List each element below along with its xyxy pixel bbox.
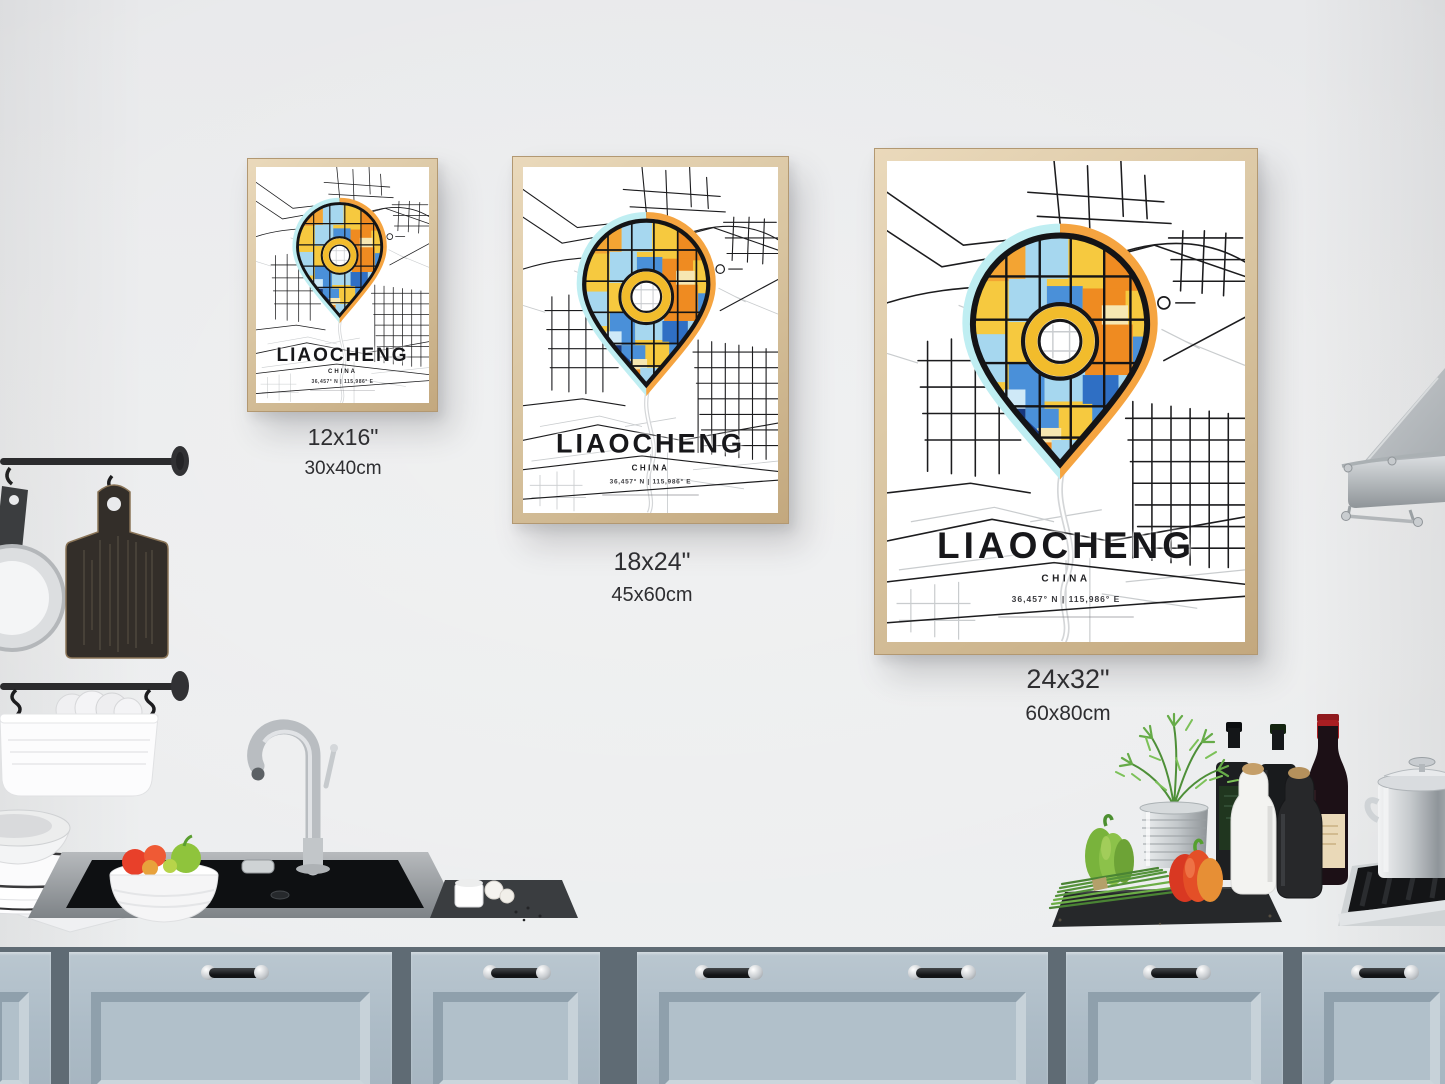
- city-map-art: [523, 167, 778, 513]
- faucet: [252, 727, 339, 874]
- kitchen-wall-mockup: LIAOCHENG CHINA 36,457° N | 115,986° E 1…: [0, 0, 1445, 1084]
- green-bell-pepper: [1085, 816, 1134, 885]
- cabinet-row: [0, 947, 1445, 1084]
- cabinet-door: [0, 952, 51, 1084]
- cabinet-door: [1302, 952, 1445, 1084]
- stock-pot: [1368, 758, 1445, 879]
- cabinet-handle: [695, 965, 763, 981]
- cabinet-door: [69, 952, 392, 1084]
- map-poster: LIAOCHENG CHINA 36,457° N | 115,986° E: [256, 167, 429, 403]
- vegetable-bowl: [110, 836, 218, 922]
- garlic: [500, 889, 514, 903]
- size-metric: 60x80cm: [983, 702, 1153, 726]
- size-metric: 30x40cm: [258, 458, 428, 480]
- size-imperial: 12x16": [258, 424, 428, 451]
- city-map-art: [256, 167, 429, 403]
- size-label-large: 24x32" 60x80cm: [983, 664, 1153, 726]
- size-label-medium: 18x24" 45x60cm: [567, 548, 737, 607]
- garlic-board: [430, 879, 578, 921]
- poster-frame-medium: LIAOCHENG CHINA 36,457° N | 115,986° E: [512, 156, 789, 524]
- wood-frame: LIAOCHENG CHINA 36,457° N | 115,986° E: [247, 158, 438, 412]
- poster-country: CHINA: [887, 574, 1245, 585]
- poster-frame-small: LIAOCHENG CHINA 36,457° N | 115,986° E: [247, 158, 438, 412]
- poster-coordinates: 36,457° N | 115,986° E: [887, 594, 1245, 604]
- print-credit-line: [602, 494, 699, 496]
- sink-area: [0, 690, 580, 950]
- cabinet-door: [411, 952, 600, 1084]
- map-poster: LIAOCHENG CHINA 36,457° N | 115,986° E: [887, 161, 1245, 642]
- size-imperial: 18x24": [567, 548, 737, 577]
- size-metric: 45x60cm: [567, 584, 737, 607]
- kitchen-sink: [28, 852, 462, 918]
- cabinet-panel: [91, 992, 370, 1084]
- size-label-small: 12x16" 30x40cm: [258, 424, 428, 480]
- cabinet-handle: [483, 965, 551, 981]
- poster-country: CHINA: [256, 369, 429, 375]
- cabinet-handle: [201, 965, 269, 981]
- cabinet-panel: [433, 992, 578, 1084]
- poster-title: LIAOCHENG: [887, 525, 1245, 567]
- cabinet-door: [637, 952, 1048, 1084]
- poster-title: LIAOCHENG: [523, 428, 778, 459]
- poster-coordinates: 36,457° N | 115,986° E: [256, 379, 429, 385]
- cabinet-handle: [1143, 965, 1211, 981]
- wood-frame: LIAOCHENG CHINA 36,457° N | 115,986° E: [874, 148, 1258, 655]
- cabinet-handle: [908, 965, 976, 981]
- poster-title: LIAOCHENG: [256, 345, 429, 367]
- cabinet-panel: [1088, 992, 1261, 1084]
- cabinet-door: [1066, 952, 1283, 1084]
- hanging-rail-top: [0, 446, 189, 476]
- frying-pan: [0, 468, 64, 650]
- wooden-cutting-board: [66, 476, 168, 658]
- print-credit-line: [998, 616, 1134, 618]
- size-imperial: 24x32": [983, 664, 1153, 695]
- cabinet-panel: [1324, 992, 1440, 1084]
- cabinet-panel: [0, 992, 29, 1084]
- range-hood: [1340, 368, 1445, 533]
- wood-frame: LIAOCHENG CHINA 36,457° N | 115,986° E: [512, 156, 789, 524]
- poster-frame-large: LIAOCHENG CHINA 36,457° N | 115,986° E: [874, 148, 1258, 655]
- pot-handle: [1368, 800, 1379, 820]
- city-map-art: [887, 161, 1245, 642]
- map-poster: LIAOCHENG CHINA 36,457° N | 115,986° E: [523, 167, 778, 513]
- soap-dish: [242, 860, 274, 873]
- cabinet-handle: [1351, 965, 1419, 981]
- cabinet-panel: [659, 992, 1026, 1084]
- poster-coordinates: 36,457° N | 115,986° E: [523, 478, 778, 485]
- poster-country: CHINA: [523, 464, 778, 473]
- hood-canopy: [1362, 368, 1445, 464]
